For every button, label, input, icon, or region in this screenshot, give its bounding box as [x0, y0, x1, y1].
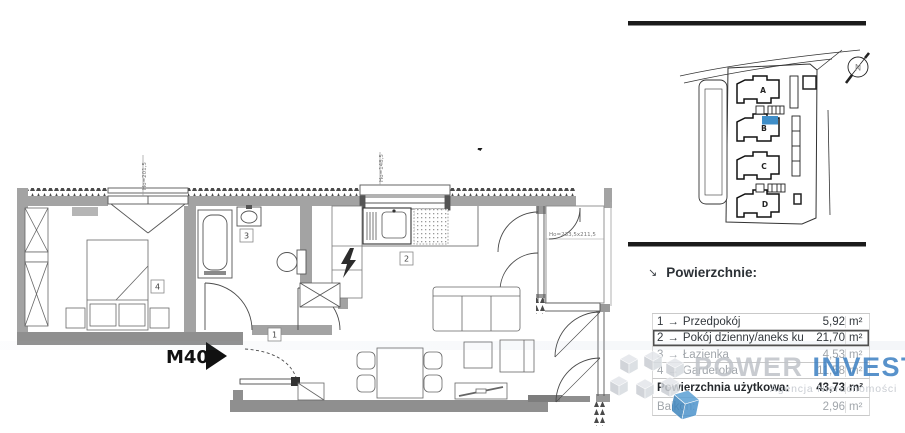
pillow [90, 304, 116, 326]
bottom-rule [628, 242, 866, 247]
unit-label: M40 [166, 347, 209, 368]
total-label: Powierzchnia użytkowa: [653, 382, 803, 394]
building-c [737, 152, 779, 179]
chair [357, 375, 375, 392]
building-letter-d: D [762, 200, 768, 209]
room-name: 3→Łazienka [653, 349, 803, 361]
row-arrow: → [663, 316, 683, 328]
room-title: Pokój dzienny/aneks kuchenny [683, 332, 803, 344]
area-row-1: 1→Przedpokój 5,92 m² [652, 314, 870, 330]
coffee-table [464, 342, 492, 368]
top-rule [628, 21, 866, 26]
area-value: 5,92 [803, 316, 845, 328]
header-arrow-icon: ↘ [648, 266, 657, 279]
area-value: 4,53 [803, 349, 845, 361]
area-unit: m² [845, 365, 869, 377]
area-row-4: 4→Garderoba 11,58 m² [652, 363, 870, 379]
areas-title: Powierzchnie: [666, 265, 757, 280]
area-value: 21,70 [803, 332, 845, 344]
site-buildings [737, 76, 779, 217]
row-arrow: → [663, 365, 683, 377]
area-unit: m² [845, 382, 869, 394]
area-value: 11,58 [803, 365, 845, 377]
site-compass-letter: N [855, 64, 861, 74]
unit-label-group: M40 [166, 342, 227, 370]
dim-balcony: Ho=233,5x211,5 [549, 232, 596, 238]
room-label-1: 1 [272, 331, 277, 340]
room-label-2: 2 [404, 255, 409, 264]
room-title: Garderoba [683, 365, 738, 377]
bedroom-furniture [25, 207, 169, 330]
site-neighbor-building [699, 80, 727, 204]
floor-plan: 1 2 3 4 Ho=201,5 Ho=148,5 Ho=233,5x211,5… [0, 148, 620, 433]
nightstand [66, 308, 85, 328]
balcony-row: Balkon: 2,96 m² [652, 398, 870, 416]
north-compass: N [469, 148, 520, 150]
room-name: 2→Pokój dzienny/aneks kuchenny [653, 332, 803, 344]
area-unit: m² [845, 332, 869, 344]
chair [424, 352, 442, 369]
balcony-label: Balkon: [653, 401, 803, 413]
room-name: 4→Garderoba [653, 365, 803, 377]
site-compass: N [846, 53, 869, 83]
balcony-value: 2,96 [803, 401, 845, 413]
armchair [500, 340, 534, 372]
building-a [737, 76, 779, 103]
areas-table: 1→Przedpokój 5,92 m² 2→Pokój dzienny/ane… [652, 313, 870, 416]
floorplan-page: { "plan": { "unit_label": "M40", "rooms"… [0, 0, 905, 433]
area-unit: m² [845, 401, 869, 413]
row-arrow: → [663, 349, 683, 361]
tap [246, 205, 252, 209]
room-label-3: 3 [244, 232, 249, 241]
total-value: 43,73 [803, 382, 845, 394]
areas-header: ↘ Powierzchnie: [648, 265, 757, 280]
dining-table [377, 348, 423, 398]
toilet [277, 253, 297, 272]
row-arrow: → [663, 332, 683, 344]
area-unit: m² [845, 316, 869, 328]
area-row-3: 3→Łazienka 4,53 m² [652, 347, 870, 363]
radiator [72, 207, 98, 216]
building-letter-c: C [761, 162, 767, 171]
site-plan: A B C D N [620, 10, 905, 250]
unit-arrow-icon [206, 342, 227, 370]
area-unit: m² [845, 349, 869, 361]
total-area-row: Powierzchnia użytkowa: 43,73 m² [652, 379, 870, 398]
building-letter-a: A [760, 86, 766, 95]
nightstand [150, 308, 169, 328]
stove [414, 209, 448, 244]
building-d [737, 190, 779, 217]
chair [424, 375, 442, 392]
dim-bedroom-window: Ho=201,5 [142, 162, 148, 190]
area-row-2: 2→Pokój dzienny/aneks kuchenny 21,70 m² [652, 330, 870, 347]
sofa [433, 287, 520, 331]
room-name: 1→Przedpokój [653, 316, 803, 328]
dim-kitchen-window: Ho=148,5 [379, 154, 385, 182]
room-title: Łazienka [683, 349, 729, 361]
room-label-4: 4 [155, 283, 160, 292]
room-title: Przedpokój [683, 316, 741, 328]
kitchen-window [360, 185, 450, 210]
building-letter-b: B [761, 124, 767, 133]
pillow [119, 304, 145, 326]
toilet-tank [297, 250, 306, 274]
chair [357, 352, 375, 369]
